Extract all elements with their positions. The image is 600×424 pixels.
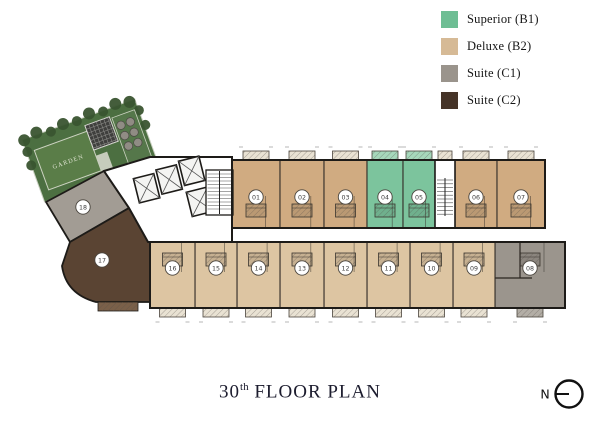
legend-item-suite-c1: Suite (C1)	[441, 65, 539, 82]
legend: Superior (B1) Deluxe (B2) Suite (C1) Sui…	[441, 11, 539, 109]
legend-item-deluxe-b2: Deluxe (B2)	[441, 38, 539, 55]
floor-number: 30	[219, 381, 240, 402]
unit-number: 08	[526, 265, 534, 272]
unit-number: 11	[384, 265, 392, 272]
unit-number: 14	[254, 265, 262, 272]
page-title: 30th FLOOR PLAN	[0, 381, 600, 403]
unit-09: 09	[453, 242, 495, 322]
legend-swatch-deluxe	[441, 38, 458, 55]
unit-number: 03	[341, 194, 349, 201]
unit-number: 16	[168, 265, 176, 272]
floor-plan-page: GARDEN	[0, 0, 600, 424]
unit-number: 09	[470, 265, 478, 272]
unit-number: 07	[517, 194, 525, 201]
unit-number: 15	[212, 265, 220, 272]
unit-14: 14	[237, 242, 280, 322]
unit-17-number: 17	[98, 257, 106, 264]
legend-item-suite-c2: Suite (C2)	[441, 92, 539, 109]
unit-number: 12	[341, 265, 349, 272]
unit-17-balcony-hatch	[98, 302, 138, 311]
unit-number: 04	[381, 194, 389, 201]
unit-15: 15	[195, 242, 237, 322]
core-stairwell	[206, 170, 233, 215]
legend-swatch-superior	[441, 11, 458, 28]
legend-label: Superior (B1)	[467, 12, 539, 27]
unit-number: 13	[298, 265, 306, 272]
legend-item-superior-b1: Superior (B1)	[441, 11, 539, 28]
unit-16: 16	[150, 242, 195, 322]
unit-13: 13	[280, 242, 324, 322]
unit-number: 05	[415, 194, 423, 201]
unit-11: 11	[367, 242, 410, 322]
unit-number: 01	[252, 194, 260, 201]
legend-swatch-suite-c2	[441, 92, 458, 109]
unit-number: 10	[427, 265, 435, 272]
legend-label: Deluxe (B2)	[467, 39, 531, 54]
legend-swatch-suite-c1	[441, 65, 458, 82]
mid-stairwell	[435, 151, 455, 228]
legend-label: Suite (C1)	[467, 66, 521, 81]
title-text: FLOOR PLAN	[254, 381, 381, 402]
unit-number: 06	[472, 194, 480, 201]
unit-18-number: 18	[79, 204, 87, 211]
unit-10: 10	[410, 242, 453, 322]
ordinal-suffix: th	[240, 381, 249, 393]
unit-12: 12	[324, 242, 367, 322]
unit-08: 08	[495, 242, 565, 322]
unit-number: 02	[298, 194, 306, 201]
legend-label: Suite (C2)	[467, 93, 521, 108]
